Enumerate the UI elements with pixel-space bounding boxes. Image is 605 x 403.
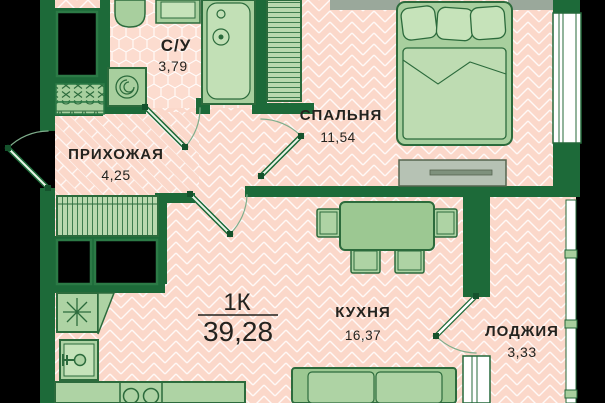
apartment-type-label: 1К bbox=[223, 289, 250, 316]
bedroom-window bbox=[553, 13, 581, 143]
desk bbox=[399, 160, 506, 186]
stove-counter bbox=[55, 382, 245, 403]
sofa bbox=[292, 368, 456, 403]
room-area-loggia: 3,33 bbox=[507, 344, 536, 360]
room-label-hallway: ПРИХОЖАЯ bbox=[68, 146, 164, 163]
room-area-hallway: 4,25 bbox=[101, 167, 130, 183]
sofa-cushion bbox=[308, 372, 374, 403]
room-area-bathroom: 3,79 bbox=[158, 58, 187, 74]
pillow bbox=[400, 5, 438, 41]
toilet-icon bbox=[115, 0, 145, 27]
chair bbox=[351, 248, 380, 273]
room-area-kitchen: 16,37 bbox=[345, 328, 381, 343]
floor-plan-image: С/У 3,79 ПРИХОЖАЯ 4,25 СПАЛЬНЯ 11,54 КУХ… bbox=[0, 0, 605, 403]
laptop-icon bbox=[430, 170, 492, 175]
sink-icon bbox=[156, 0, 200, 23]
room-label-bathroom: С/У bbox=[161, 36, 192, 55]
room-label-kitchen: КУХНЯ bbox=[335, 304, 390, 321]
floor-plan-svg: С/У 3,79 ПРИХОЖАЯ 4,25 СПАЛЬНЯ 11,54 КУХ… bbox=[0, 0, 605, 403]
pillow bbox=[436, 7, 474, 41]
floor-loggia bbox=[490, 197, 576, 403]
bed bbox=[397, 2, 512, 145]
duct-block-icon bbox=[56, 102, 104, 114]
pillow bbox=[470, 6, 506, 40]
dining-table bbox=[340, 202, 434, 250]
bathtub-icon bbox=[202, 0, 255, 104]
fridge-icon bbox=[57, 293, 98, 332]
room-label-loggia: ЛОДЖИЯ bbox=[485, 323, 559, 340]
vent-block-icon bbox=[56, 84, 104, 102]
bedroom-wardrobe bbox=[267, 0, 301, 101]
room-area-bedroom: 11,54 bbox=[320, 130, 355, 145]
kitchen-sink-icon bbox=[60, 340, 98, 380]
loggia-window bbox=[565, 200, 577, 403]
chair bbox=[395, 248, 424, 273]
blanket bbox=[403, 48, 506, 139]
total-area-label: 39,28 bbox=[203, 316, 273, 347]
sofa-cushion bbox=[376, 372, 442, 403]
hall-closet bbox=[57, 196, 158, 236]
room-label-bedroom: СПАЛЬНЯ bbox=[300, 107, 383, 124]
washing-machine-icon bbox=[108, 68, 146, 106]
